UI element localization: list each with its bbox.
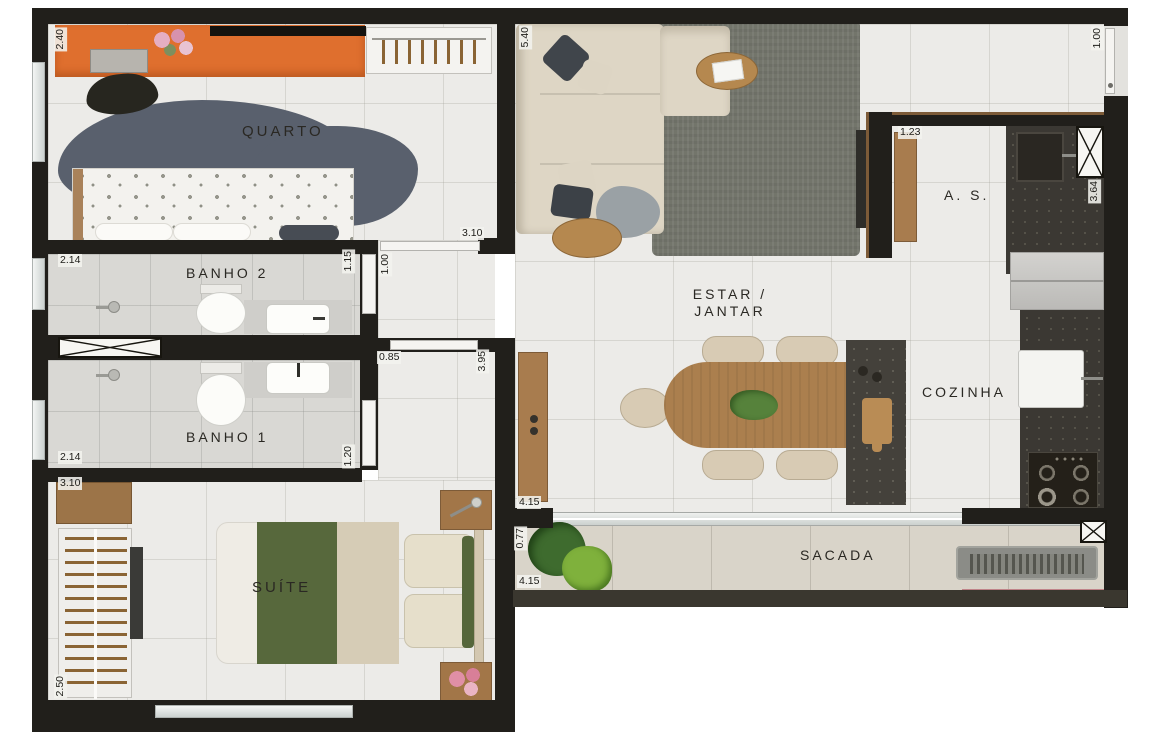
- banho2-window: [32, 258, 45, 310]
- as-bench: [894, 132, 917, 242]
- living-tv-panel: [856, 130, 866, 228]
- laundry-sink: [1016, 132, 1064, 182]
- shaft-x-icon: [1076, 126, 1104, 178]
- shower-head-icon: [96, 292, 126, 326]
- grinder-icon: [872, 372, 882, 382]
- floor-plan: QUARTO BANHO 2 BANHO 1 SUÍTE ESTAR / JAN…: [0, 0, 1170, 732]
- bed-pillow: [173, 223, 251, 241]
- wall: [497, 8, 515, 254]
- grinder-icon: [858, 366, 868, 376]
- ac-condenser-unit: [956, 546, 1098, 580]
- fridge: [1010, 252, 1104, 310]
- faucet-icon: [313, 317, 325, 320]
- door-handle-icon: [1108, 83, 1113, 88]
- room-label-as: A. S.: [944, 188, 989, 202]
- cutting-board: [862, 398, 892, 444]
- room-label-estar: ESTAR /: [672, 286, 788, 303]
- bed-accent-pillow: [279, 225, 339, 241]
- wall: [1104, 96, 1128, 608]
- room-label-suite: SUÍTE: [252, 580, 311, 595]
- banho2-sliding-door: [362, 254, 376, 314]
- dim-hall-length: 3.95: [476, 349, 489, 373]
- wall: [866, 112, 892, 258]
- hanger-rail-icon: [372, 38, 486, 64]
- bathroom-sink: [266, 362, 330, 394]
- suite-hall-sliding-door: [390, 340, 478, 350]
- entry-door: [1105, 28, 1115, 94]
- toilet: [194, 284, 248, 334]
- balcony-parapet: [513, 590, 1127, 607]
- table-plant: [730, 390, 778, 420]
- dim-as-bench: 1.23: [898, 126, 922, 139]
- room-label-jantar: JANTAR: [672, 303, 788, 320]
- wall: [495, 338, 515, 732]
- duvet: [337, 522, 399, 664]
- shaft-x-icon: [58, 337, 162, 358]
- wall: [32, 240, 362, 254]
- headboard: [474, 518, 484, 668]
- dim-banho2-door: 1.15: [342, 249, 355, 273]
- dim-suite-wardrobe: 3.10: [58, 477, 82, 490]
- dim-quarto-width: 2.40: [54, 27, 67, 51]
- bed: [72, 168, 354, 244]
- wall: [32, 8, 1112, 24]
- dining-chair: [776, 450, 838, 480]
- room-label-sacada: SACADA: [800, 548, 876, 562]
- sofa-pillow: [550, 183, 594, 220]
- room-label-cozinha: COZINHA: [922, 385, 1006, 399]
- dim-entry-door: 1.00: [1091, 26, 1104, 50]
- bed-side-shelf: [73, 169, 83, 243]
- wall: [478, 238, 515, 254]
- sideboard: [518, 352, 548, 502]
- wardrobe: [366, 27, 492, 74]
- faucet-icon: [297, 363, 300, 377]
- dim-banho1-door: 1.20: [342, 444, 355, 468]
- bathroom-sink: [266, 304, 330, 334]
- faucet-icon: [1081, 377, 1103, 380]
- quarto-sliding-door: [380, 241, 480, 251]
- bed-pillow: [95, 223, 173, 241]
- suite-accent-pillow: [462, 536, 474, 648]
- dim-living-width: 4.15: [517, 496, 541, 509]
- magazine: [712, 59, 744, 83]
- toilet: [194, 362, 248, 426]
- suite-window: [155, 705, 353, 718]
- room-label-quarto: QUARTO: [242, 124, 324, 139]
- suite-tv-panel: [130, 547, 143, 639]
- dim-suite-hall-door: 0.85: [377, 351, 401, 364]
- dim-kitchen-length: 3.64: [1088, 179, 1101, 203]
- desk-flowers: [150, 28, 198, 58]
- room-label-estar-jantar: ESTAR / JANTAR: [672, 286, 788, 320]
- banho1-sliding-door: [362, 400, 376, 466]
- dim-banho2-width: 2.14: [58, 254, 82, 267]
- room-label-banho2: BANHO 2: [186, 266, 268, 280]
- dining-chair: [702, 450, 764, 480]
- lamp-icon: [450, 504, 473, 518]
- wall: [866, 112, 1112, 126]
- dim-hall-width: 1.00: [379, 252, 392, 276]
- nightstand: [440, 662, 492, 702]
- coffee-table: [552, 218, 622, 258]
- dining-chair: [620, 388, 670, 428]
- wall: [497, 508, 553, 528]
- banho1-window: [32, 400, 45, 460]
- dim-banho1-width: 2.14: [58, 451, 82, 464]
- kitchen-sink: [1018, 350, 1084, 408]
- dim-living-length: 5.40: [519, 25, 532, 49]
- dim-sacada-depth: 0.77: [514, 526, 527, 550]
- lamp-icon: [471, 497, 482, 508]
- quarto-window: [32, 62, 45, 162]
- shower-head-icon: [96, 360, 126, 394]
- dining-table: [664, 362, 854, 448]
- stove: [1028, 452, 1098, 508]
- laptop: [90, 49, 148, 73]
- dim-suite-width: 2.50: [54, 674, 67, 698]
- dim-quarto-door: 3.10: [460, 227, 484, 240]
- balcony-plant: [562, 546, 612, 592]
- side-table: [696, 52, 758, 90]
- tv-on-desk: [210, 26, 366, 36]
- wall: [1104, 8, 1128, 26]
- room-label-banho1: BANHO 1: [186, 430, 268, 444]
- kitchen-island: [846, 340, 906, 505]
- dim-sacada-length: 4.15: [517, 575, 541, 588]
- suite-wardrobe: [58, 528, 132, 698]
- shaft-x-icon: [1080, 520, 1107, 543]
- nightstand: [440, 490, 492, 530]
